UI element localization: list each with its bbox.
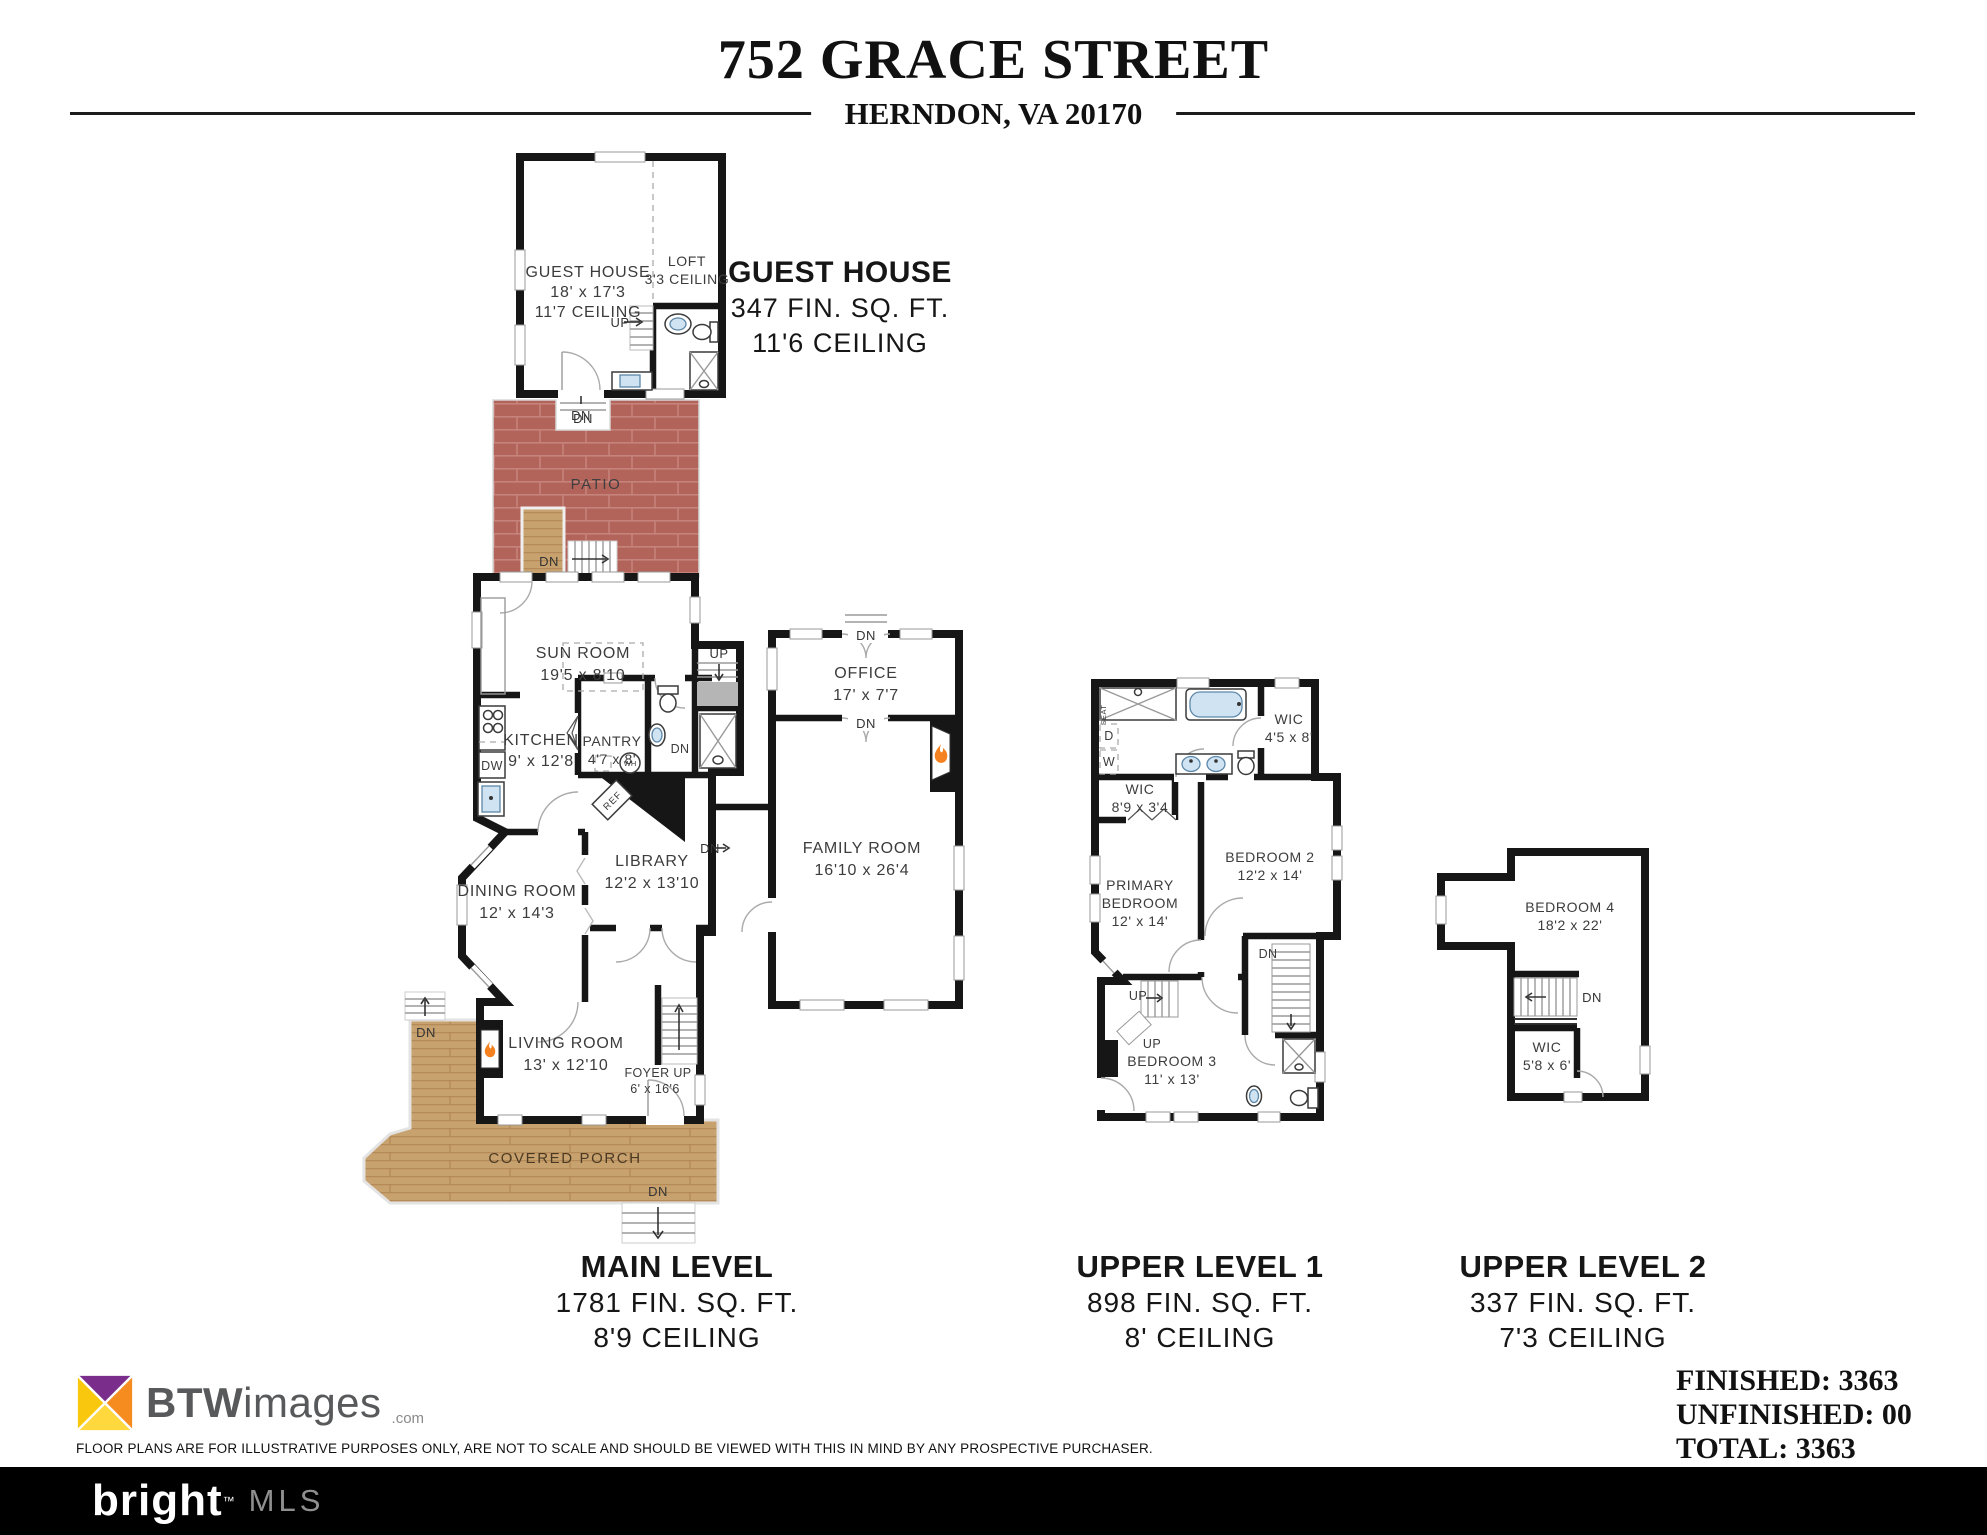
dim-label-kitchen: 9' x 12'8 (508, 753, 574, 770)
main-level-ceiling: 8'9 CEILING (477, 1320, 877, 1355)
office-dn-bottom-label: DN (856, 716, 876, 731)
dim-label-dining-room: 12' x 14'3 (479, 905, 555, 922)
guest-kitchenette-sink (612, 372, 652, 390)
dim-label-wic-primary: 8'9 x 3'4 (1112, 799, 1169, 815)
dim-label-pantry: 4'7 x 8' (588, 751, 636, 767)
upper-level-1-sqft: 898 FIN. SQ. FT. (1000, 1285, 1400, 1320)
guest-heading-title: GUEST HOUSE (690, 254, 990, 291)
room-label-bedroom2: BEDROOM 2 (1225, 849, 1314, 865)
covered-porch-label: COVERED PORCH (488, 1150, 641, 1167)
room-label-office: OFFICE (834, 665, 897, 682)
main-level-label: MAIN LEVEL 1781 FIN. SQ. FT. 8'9 CEILING (477, 1248, 877, 1355)
room-label-library: LIBRARY (615, 853, 689, 870)
main-level-plan: UP DW (457, 572, 964, 1125)
family-fireplace-icon (930, 715, 959, 792)
room-label-living-room: LIVING ROOM (508, 1035, 623, 1052)
btw-logo: BTWimages .com (74, 1372, 424, 1434)
bright-mls-bar: bright™ MLS (0, 1467, 1987, 1535)
room-label-primary-2: BEDROOM (1102, 895, 1179, 911)
dim-label-bedroom4: 18'2 x 22' (1537, 917, 1602, 933)
mainbath-dn-label: DN (671, 742, 690, 756)
dim-label-office: 17' x 7'7 (833, 687, 899, 704)
upper2-stairs (1514, 974, 1579, 1024)
guest-dn-label: DN (571, 408, 591, 423)
total-finished: FINISHED: 3363 (1676, 1364, 1912, 1398)
upper-level-2-ceiling: 7'3 CEILING (1383, 1320, 1783, 1355)
mls-logo-text: MLS (249, 1483, 325, 1519)
porch-front-steps (622, 1203, 695, 1243)
room-label-bedroom4: BEDROOM 4 (1525, 899, 1614, 915)
upper-level-2-plan: DN BEDROOM 4 18'2 x 22' WIC 5'8 x 6' (1436, 852, 1650, 1102)
room-label-wic-primary: WIC (1125, 781, 1154, 797)
main-level-name: MAIN LEVEL (477, 1248, 877, 1285)
mainbath-toilet-icon (658, 686, 678, 712)
upper-level-1-name: UPPER LEVEL 1 (1000, 1248, 1400, 1285)
upper-level-2-sqft: 337 FIN. SQ. FT. (1383, 1285, 1783, 1320)
upper-level-1-label: UPPER LEVEL 1 898 FIN. SQ. FT. 8' CEILIN… (1000, 1248, 1400, 1355)
main-up-label: UP (709, 646, 728, 661)
room-label-dining-room: DINING ROOM (457, 883, 576, 900)
porch-side-dn-label: DN (416, 1025, 436, 1040)
guest-heading-sqft: 347 FIN. SQ. FT. (690, 291, 990, 326)
room-label-wic-upper2: WIC (1532, 1039, 1561, 1055)
upper-level-1-ceiling: 8' CEILING (1000, 1320, 1400, 1355)
upper-level-2-label: UPPER LEVEL 2 337 FIN. SQ. FT. 7'3 CEILI… (1383, 1248, 1783, 1355)
upper1-up-label-2: UP (1143, 1037, 1161, 1051)
washer-label: W (1103, 755, 1115, 769)
guest-bath-sink-icon (665, 314, 691, 334)
room-label-guest-house: GUEST HOUSE (526, 264, 651, 281)
room-label-primary-1: PRIMARY (1106, 877, 1174, 893)
mainbath-sink-icon (649, 724, 665, 746)
room-label-wic-bath: WIC (1274, 711, 1303, 727)
up-stairs-main (697, 663, 738, 706)
upper1-up-label-1: UP (1129, 989, 1147, 1003)
bathtub-icon (1186, 689, 1246, 720)
upper1-bath2-sink-icon (1247, 1086, 1262, 1106)
dim-label-bedroom2: 12'2 x 14' (1237, 867, 1302, 883)
dim-label-wic-upper2: 5'8 x 6' (1523, 1057, 1571, 1073)
upper-level-2-name: UPPER LEVEL 2 (1383, 1248, 1783, 1285)
room-label-sun-room: SUN ROOM (536, 645, 630, 662)
patio-area: DN PATIO DN (493, 389, 699, 577)
dim-label-wic-bath: 4'5 x 8' (1265, 729, 1313, 745)
total-total: TOTAL: 3363 (1676, 1432, 1912, 1466)
kitchen-sink-icon (478, 782, 504, 816)
bright-tm: ™ (223, 1494, 235, 1508)
upper-level-1-plan: SEAT D W (1090, 678, 1342, 1122)
porch-side-steps (405, 992, 445, 1020)
room-label-pantry: PANTRY (582, 733, 641, 749)
page-subtitle: HERNDON, VA 20170 (811, 96, 1177, 132)
ceiling-label-guest-house: 11'7 CEILING (535, 304, 642, 321)
office-dn-top-label: DN (856, 628, 876, 643)
kitchen-stove-icon (479, 706, 505, 750)
dim-label-primary: 12' x 14' (1112, 913, 1169, 929)
office-exterior-steps (845, 615, 887, 622)
guest-house-heading: GUEST HOUSE 347 FIN. SQ. FT. 11'6 CEILIN… (690, 254, 990, 361)
btw-logo-bold: BTW (146, 1379, 243, 1426)
btw-logo-text: BTWimages (146, 1379, 382, 1427)
btw-logo-icon (74, 1372, 136, 1434)
room-label-family-room: FAMILY ROOM (803, 840, 921, 857)
totals-block: FINISHED: 3363 UNFINISHED: 00 TOTAL: 336… (1676, 1364, 1912, 1466)
living-fireplace-icon (477, 1020, 503, 1078)
dim-label-living-room: 13' x 12'10 (523, 1057, 608, 1074)
dim-label-family-room: 16'10 x 26'4 (815, 862, 910, 879)
total-unfinished: UNFINISHED: 00 (1676, 1398, 1912, 1432)
dim-label-bedroom3: 11' x 13' (1144, 1071, 1200, 1087)
floor-plan-page: 752 GRACE STREET HERNDON, VA 20170 DN PA… (0, 0, 1987, 1535)
upper2-dn-label: DN (1582, 990, 1602, 1005)
bright-logo-text: bright (92, 1476, 223, 1526)
dim-label-foyer: 6' x 16'6 (630, 1082, 679, 1096)
dw-label: DW (481, 759, 503, 773)
upper1-dn-label: DN (1259, 947, 1278, 961)
bedroom3-chimney (1098, 1040, 1118, 1077)
basement-dn-label: DN (700, 841, 720, 856)
dim-label-library: 12'2 x 13'10 (605, 875, 700, 892)
basement-corridor-fill (712, 803, 772, 935)
guest-heading-ceiling: 11'6 CEILING (690, 326, 990, 361)
upper1-toilet-icon (1238, 751, 1254, 775)
main-level-sqft: 1781 FIN. SQ. FT. (477, 1285, 877, 1320)
dryer-label: D (1104, 729, 1113, 743)
room-label-foyer: FOYER UP (624, 1066, 691, 1080)
dim-label-guest-house: 18' x 17'3 (550, 284, 626, 301)
double-sink-icon (1176, 754, 1232, 774)
main-shower-icon (700, 714, 736, 768)
foyer-stairs (662, 998, 697, 1064)
upper1-bath2-shower-icon (1283, 1039, 1315, 1073)
room-label-bedroom3: BEDROOM 3 (1127, 1053, 1216, 1069)
room-label-kitchen: KITCHEN (503, 732, 579, 749)
upper1-dn-stairs (1272, 944, 1310, 1032)
shower-seat-label: SEAT (1099, 704, 1108, 725)
dim-label-sun-room: 19'5 x 8'10 (540, 667, 625, 684)
btw-logo-rest: images (243, 1379, 381, 1426)
upper1-shower-icon (1100, 688, 1176, 720)
disclaimer-text: FLOOR PLANS ARE FOR ILLUSTRATIVE PURPOSE… (76, 1441, 1153, 1456)
porch-front-dn-label: DN (648, 1184, 668, 1199)
btw-logo-dotcom: .com (392, 1410, 425, 1434)
patio-label: PATIO (571, 476, 622, 493)
patio-deck-dn-label: DN (539, 554, 559, 569)
